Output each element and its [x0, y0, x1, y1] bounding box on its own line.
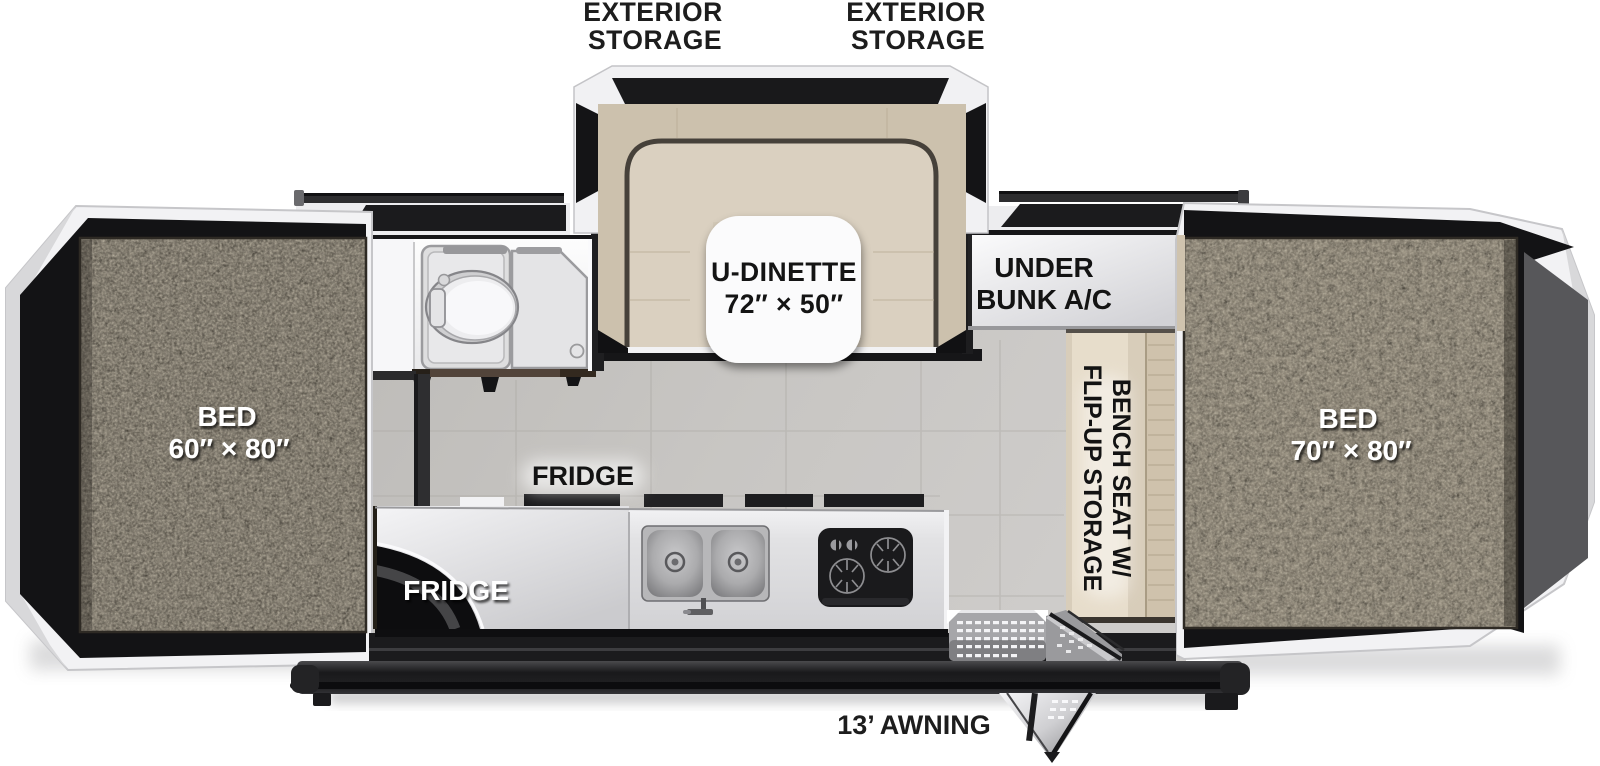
- svg-text:FRIDGE: FRIDGE: [532, 461, 634, 491]
- svg-text:70″ × 80″: 70″ × 80″: [1290, 435, 1411, 466]
- svg-text:BENCH SEAT W/FLIP-UP STORAGE: BENCH SEAT W/FLIP-UP STORAGE: [1078, 365, 1135, 592]
- svg-text:STORAGE: STORAGE: [588, 25, 722, 55]
- svg-text:13’ AWNING: 13’ AWNING: [837, 710, 991, 740]
- svg-text:BUNK A/C: BUNK A/C: [976, 284, 1112, 315]
- svg-text:BED: BED: [1318, 403, 1377, 434]
- svg-text:72″ × 50″: 72″ × 50″: [724, 289, 843, 319]
- svg-text:UNDER: UNDER: [994, 252, 1094, 283]
- svg-text:BED: BED: [197, 401, 256, 432]
- svg-text:EXTERIOR: EXTERIOR: [583, 0, 722, 27]
- svg-text:60″ × 80″: 60″ × 80″: [168, 433, 289, 464]
- svg-text:U-DINETTE: U-DINETTE: [711, 257, 857, 287]
- svg-text:EXTERIOR: EXTERIOR: [846, 0, 985, 27]
- svg-text:STORAGE: STORAGE: [851, 25, 985, 55]
- svg-text:FRIDGE: FRIDGE: [403, 575, 509, 606]
